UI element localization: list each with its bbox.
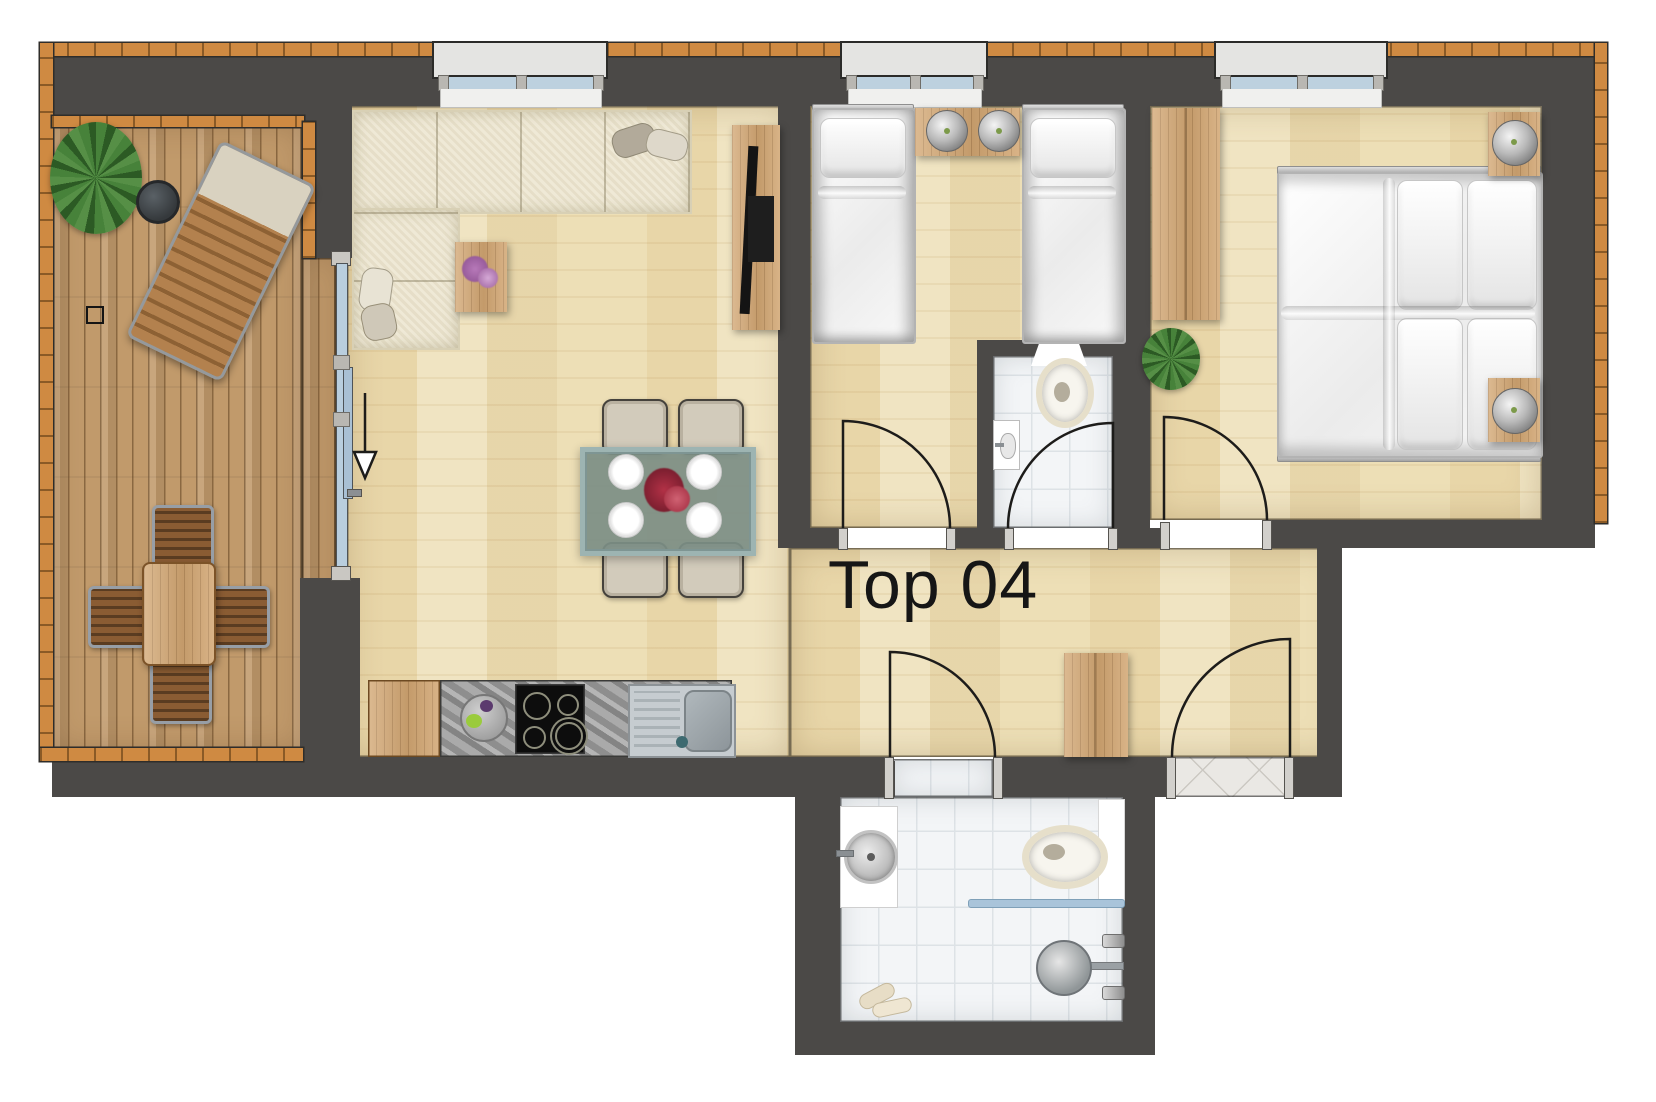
entrance-door [1172, 639, 1290, 757]
entry-direction-arrow-head [354, 452, 376, 478]
unit-label: Top 04 [828, 546, 1038, 624]
floor-plan-canvas: Top 04 [0, 0, 1656, 1102]
wc-door [1008, 423, 1113, 528]
bathroom-door [890, 652, 995, 757]
twin-bedroom-door [843, 421, 950, 528]
master-bedroom-door [1164, 417, 1267, 520]
